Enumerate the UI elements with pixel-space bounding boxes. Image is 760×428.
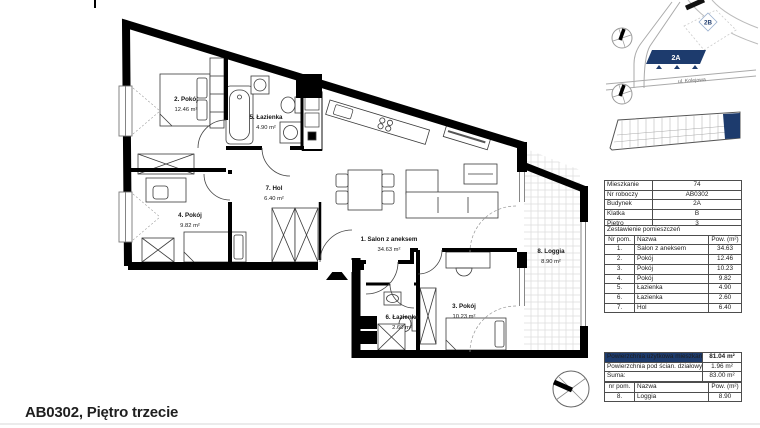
info-value: AB0302 (653, 190, 742, 200)
col-header-name: Nazwa (635, 383, 709, 393)
info-value: 74 (653, 181, 742, 191)
page-title: AB0302, Piętro trzecie (25, 404, 178, 421)
map-compass-icon-1 (612, 28, 632, 48)
col-header-nr: Nr pom. (605, 235, 635, 245)
floor-plan-page: 1. Salon z aneksem 34.63 m² 2. Pokój 12.… (0, 0, 760, 428)
col-header-area: Pow. (m²) (709, 235, 742, 245)
cell-nr: 6. (605, 294, 635, 304)
cell-nr: 8. (605, 392, 635, 402)
col-header-area: Pow. (m²) (709, 383, 742, 393)
cell-name: Hol (635, 303, 709, 313)
wardrobe (210, 58, 224, 128)
rooms-table: Zestawienie pomieszczeń Nr pom. Nazwa Po… (604, 225, 742, 313)
room-label-salon: 1. Salon z aneksem (361, 236, 418, 243)
cell-area: 12.46 (709, 255, 742, 265)
bed-room3 (446, 318, 506, 350)
dining-table (336, 170, 394, 210)
street-label: ul. Kolejowa (678, 77, 706, 85)
site-map: 2B 2A ul. Kolejowa (600, 0, 760, 108)
room-area-hol: 6.40 m² (264, 196, 284, 202)
entrance-opening (318, 260, 352, 272)
summary-value: 83.00 m² (703, 372, 742, 382)
summary-label: Suma: (605, 372, 703, 382)
col-header-nr: nr pom. (605, 383, 635, 393)
floor-plan: 1. Salon z aneksem 34.63 m² 2. Pokój 12.… (0, 0, 600, 428)
building-elevation (602, 108, 754, 156)
info-table: Mieszkanie 74 Nr roboczy AB0302 Budynek … (604, 180, 742, 230)
table-row: 5. Łazienka 4.90 (605, 284, 742, 294)
toilet (281, 97, 302, 113)
fridge-column (302, 92, 322, 150)
room-area-pokoj4: 9.82 m² (180, 223, 200, 229)
room-area-lazienka5: 4.90 m² (256, 125, 276, 131)
room-area-pokoj3: 10.23 m² (453, 314, 476, 320)
room-area-pokoj2: 12.46 m² (175, 107, 198, 113)
building-2a-marker: 2A (646, 50, 706, 69)
info-label: Mieszkanie (605, 181, 653, 191)
washbasin-round (280, 122, 301, 143)
tv-bench (464, 164, 497, 184)
cell-area: 6.40 (709, 303, 742, 313)
rooms-table-title: Zestawienie pomieszczeń (605, 226, 742, 236)
cell-area: 9.82 (709, 274, 742, 284)
bottom-divider (0, 423, 760, 425)
cell-area: 4.90 (709, 284, 742, 294)
room-area-salon: 34.63 m² (378, 247, 401, 253)
storage-box-x (142, 238, 174, 262)
info-value: 2A (653, 200, 742, 210)
cell-name: Pokój (635, 274, 709, 284)
map-compass-icon-2 (612, 84, 632, 104)
cell-name: Salon z aneksem (635, 245, 709, 255)
table-row: 3. Pokój 10.23 (605, 264, 742, 274)
building-2a-label: 2A (672, 55, 681, 62)
summary-label: Powierzchnia pod ścian. działowymi (605, 362, 703, 372)
cell-nr: 7. (605, 303, 635, 313)
elevation-highlight-unit (723, 113, 740, 139)
room-label-pokoj4: 4. Pokój (178, 212, 202, 219)
cell-name: Loggia (635, 392, 709, 402)
info-label: Klatka (605, 210, 653, 220)
wardrobe-room3 (420, 288, 436, 344)
washing-machine (251, 76, 269, 94)
table-row: 6. Łazienka 2.60 (605, 294, 742, 304)
table-row: Powierzchnia pod ścian. działowymi 1.96 … (605, 362, 742, 372)
loggia-table: nr pom. Nazwa Pow. (m²) 8. Loggia 8.90 (604, 382, 742, 402)
info-label: Budynek (605, 200, 653, 210)
summary-value: 1.96 m² (703, 362, 742, 372)
compass-icon (553, 371, 589, 407)
table-row: 4. Pokój 9.82 (605, 274, 742, 284)
kitchen-counter (326, 100, 430, 144)
cell-area: 8.90 (709, 392, 742, 402)
info-value: B (653, 210, 742, 220)
desk (146, 178, 186, 202)
desk-room3 (446, 252, 490, 276)
room-area-lazienka6: 2.60 m² (392, 325, 412, 331)
info-label: Nr roboczy (605, 190, 653, 200)
cell-area: 34.63 (709, 245, 742, 255)
room-label-lazienka5: 5. Łazienka (249, 114, 283, 121)
col-header-name: Nazwa (635, 235, 709, 245)
room-label-pokoj2: 2. Pokój (174, 96, 198, 103)
bed-single (184, 232, 246, 262)
room-label-lazienka6: 6. Łazienka (385, 314, 419, 321)
cell-name: Łazienka (635, 294, 709, 304)
table-row: 8. Loggia 8.90 (605, 392, 742, 402)
summary-value: 81.04 m² (703, 353, 742, 363)
cell-name: Pokój (635, 255, 709, 265)
cell-nr: 2. (605, 255, 635, 265)
cell-nr: 5. (605, 284, 635, 294)
building-2b-label: 2B (704, 20, 712, 27)
cell-area: 2.60 (709, 294, 742, 304)
room-area-loggia: 8.90 m² (541, 259, 561, 265)
cell-nr: 4. (605, 274, 635, 284)
loggia-floor-grid (520, 140, 585, 354)
hall-wardrobe-x (272, 208, 318, 262)
summary-label: Powierzchnia użytkowa mieszkania (605, 353, 703, 363)
table-row: Suma: 83.00 m² (605, 372, 742, 382)
cell-name: Pokój (635, 264, 709, 274)
cell-name: Łazienka (635, 284, 709, 294)
cell-nr: 1. (605, 245, 635, 255)
cell-area: 10.23 (709, 264, 742, 274)
summary-table: Powierzchnia użytkowa mieszkania 81.04 m… (604, 352, 742, 382)
room-label-loggia: 8. Loggia (537, 248, 565, 255)
table-row: 1. Salon z aneksem 34.63 (605, 245, 742, 255)
cell-nr: 3. (605, 264, 635, 274)
table-row: 7. Hol 6.40 (605, 303, 742, 313)
elevation-outline (610, 112, 740, 150)
room-label-pokoj3: 3. Pokój (452, 303, 476, 310)
room-label-hol: 7. Hol (266, 185, 283, 192)
summary-highlight-row: Powierzchnia użytkowa mieszkania 81.04 m… (605, 353, 742, 363)
table-row: 2. Pokój 12.46 (605, 255, 742, 265)
